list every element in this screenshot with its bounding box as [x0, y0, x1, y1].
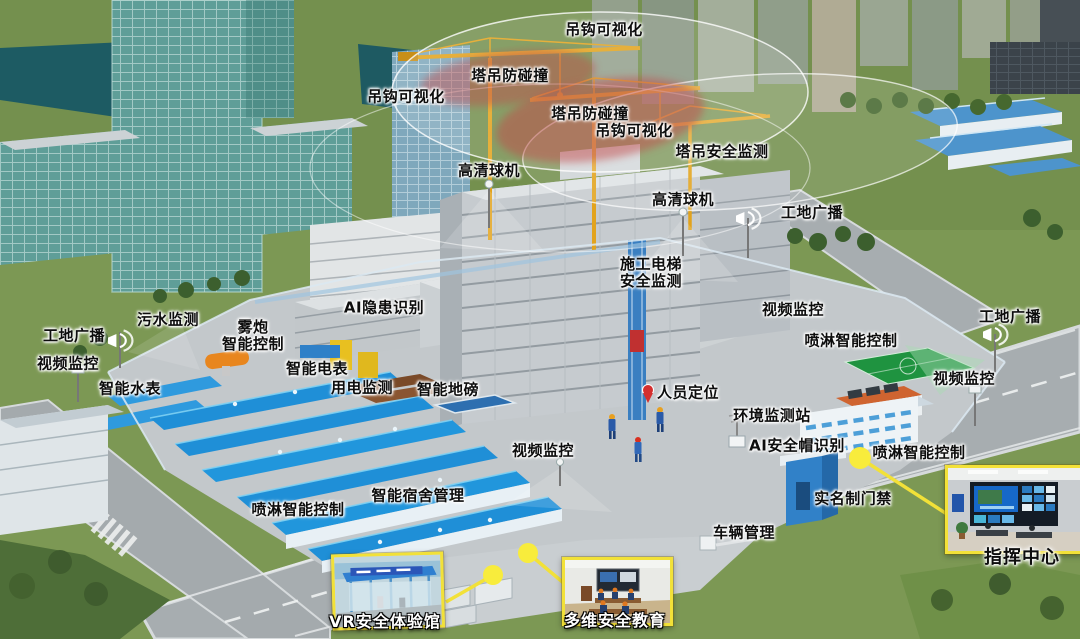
- side-monitor: [952, 494, 964, 512]
- left-facility-building: [0, 405, 124, 535]
- leader-dot: [483, 565, 503, 585]
- inset-vr-experience-hall: [331, 552, 445, 631]
- hoist-cage: [630, 330, 644, 352]
- plant: [956, 522, 968, 534]
- inset-safety-education: [562, 557, 673, 626]
- smart-construction-site-scene: 吊钩可视化塔吊防碰撞吊钩可视化塔吊防碰撞吊钩可视化塔吊安全监测高清球机高清球机工…: [0, 0, 1080, 639]
- inset-command-center: [945, 465, 1080, 554]
- vr-hall-photo: [334, 555, 442, 628]
- site-3d-render: [0, 0, 1080, 639]
- command-center-photo: [948, 468, 1080, 551]
- env-monitoring-station: [729, 436, 745, 447]
- safety-education-photo: [565, 560, 670, 623]
- leader-dot: [849, 447, 871, 469]
- leader-dot: [518, 543, 538, 563]
